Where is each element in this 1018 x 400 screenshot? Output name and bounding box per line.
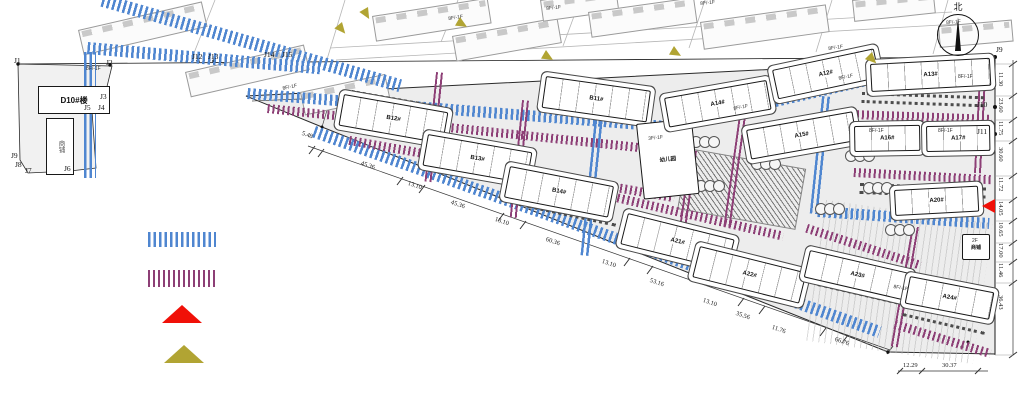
context-road-lines xyxy=(192,0,958,66)
north-compass: 北 xyxy=(936,0,980,56)
compass-needle-icon xyxy=(955,17,961,51)
legend-red-triangle-icon xyxy=(162,305,202,323)
legend-olive-triangle-icon xyxy=(164,345,204,363)
legend-blue-road-swatch xyxy=(148,232,216,247)
north-label: 北 xyxy=(936,0,980,13)
site-plan: D10#楼 商铺 B12# B13# B11# B14# A21# A22# 幼… xyxy=(0,0,1018,400)
red-arrow-icon xyxy=(982,199,995,213)
plan-linework xyxy=(0,0,1018,400)
extension-lines xyxy=(995,64,1013,355)
compass-circle xyxy=(937,14,979,56)
legend-purple-road-swatch xyxy=(148,270,217,287)
